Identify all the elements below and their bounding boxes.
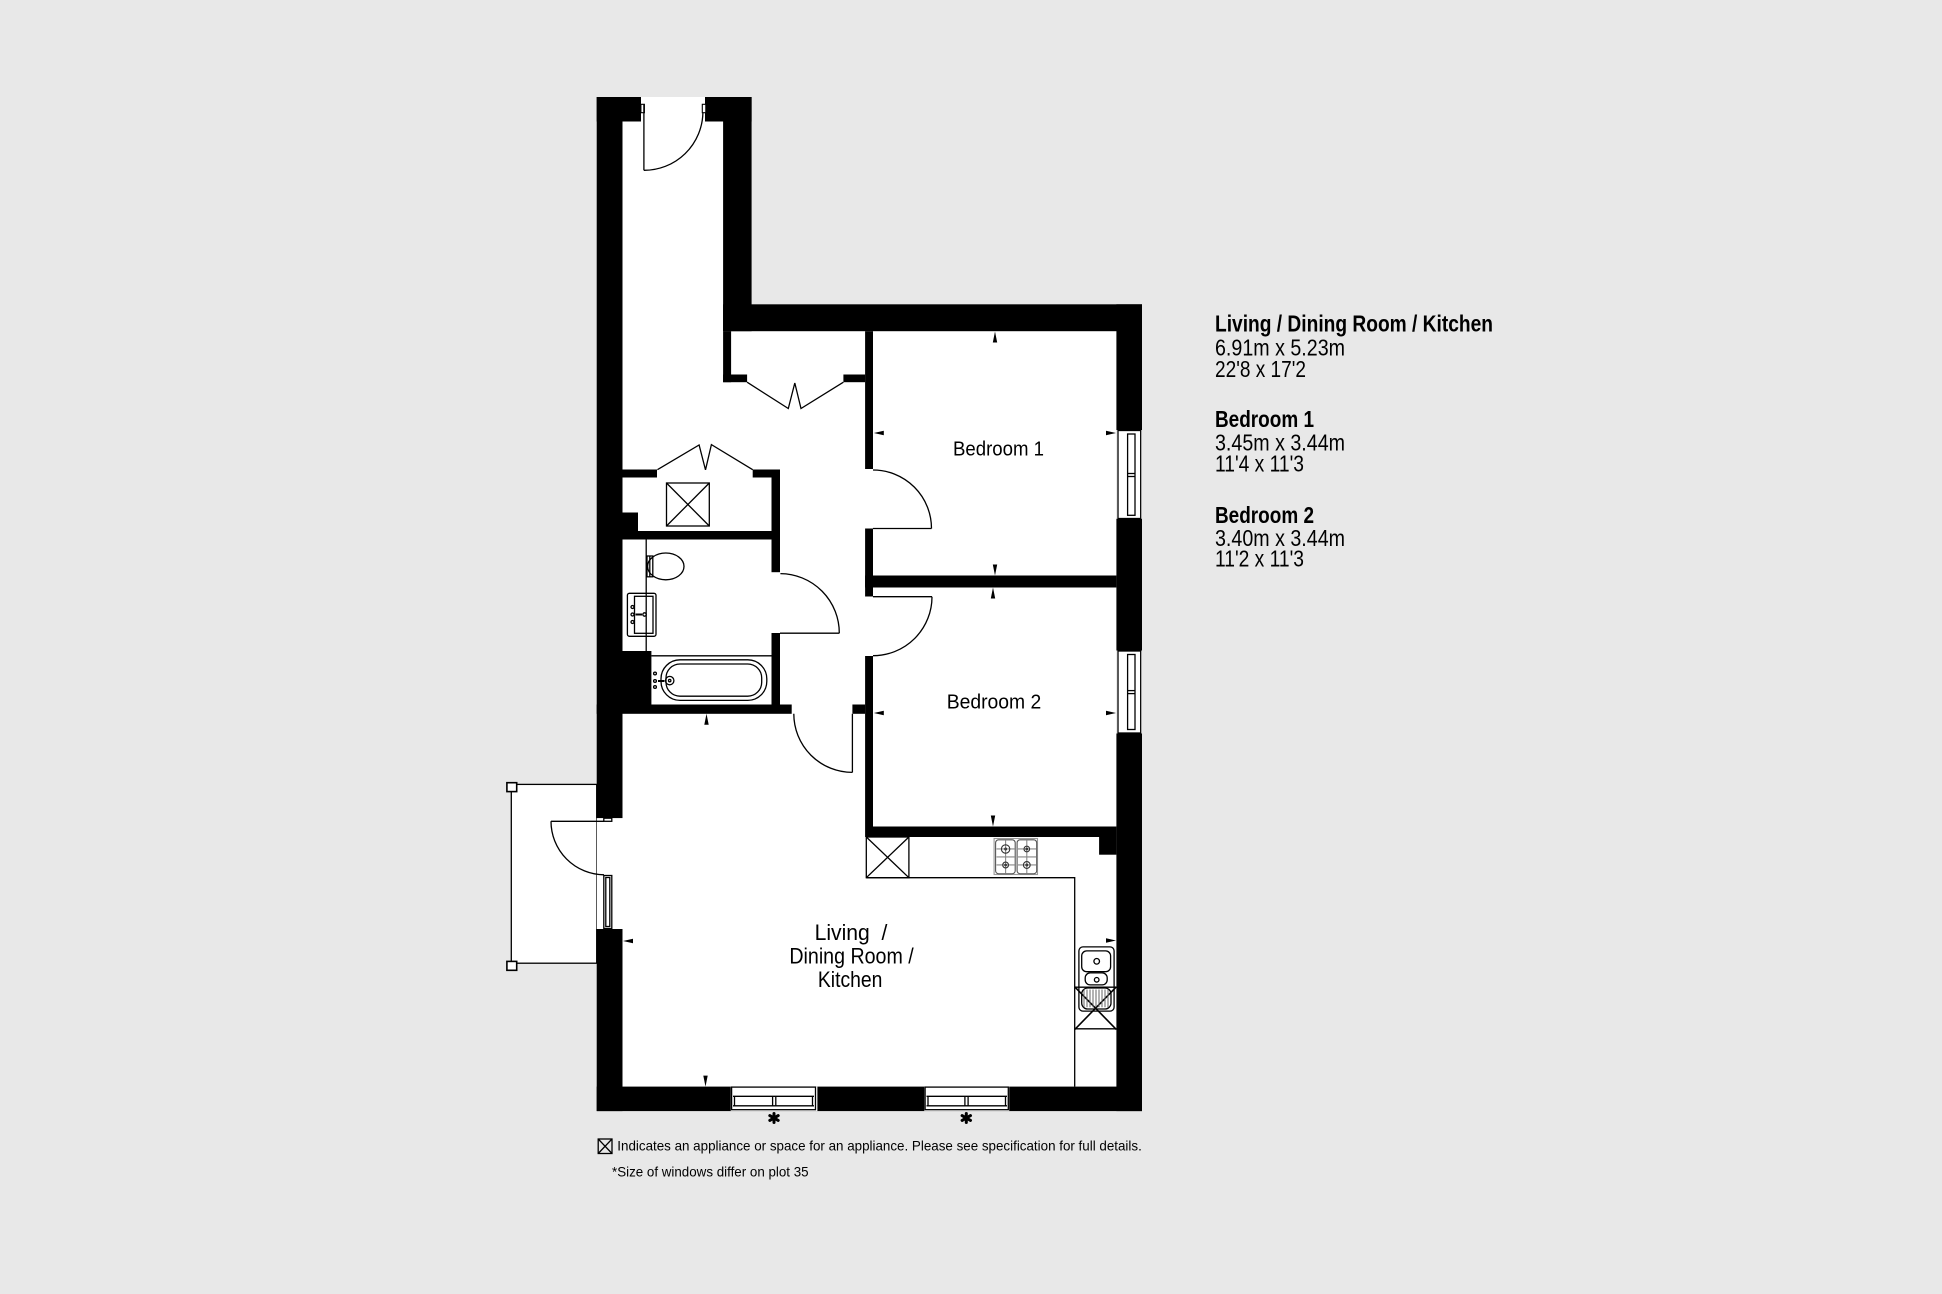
svg-text:Living /: Living / — [815, 920, 888, 945]
svg-text:Living / Dining Room / Kitchen: Living / Dining Room / Kitchen — [1215, 311, 1493, 337]
svg-text:Bedroom 2: Bedroom 2 — [947, 692, 1042, 714]
svg-text:Bedroom 1: Bedroom 1 — [1215, 406, 1314, 432]
svg-text:Kitchen: Kitchen — [818, 967, 883, 992]
svg-text:Indicates an appliance or spac: Indicates an appliance or space for an a… — [617, 1138, 1142, 1154]
svg-text:11'4 x 11'3: 11'4 x 11'3 — [1215, 451, 1304, 477]
svg-text:Bedroom 1: Bedroom 1 — [953, 438, 1044, 460]
svg-text:Dining Room /: Dining Room / — [789, 944, 914, 969]
svg-text:22'8 x 17'2: 22'8 x 17'2 — [1215, 356, 1306, 382]
svg-text:11'2 x 11'3: 11'2 x 11'3 — [1215, 545, 1304, 571]
svg-text:*Size of windows differ on plo: *Size of windows differ on plot 35 — [612, 1163, 809, 1179]
